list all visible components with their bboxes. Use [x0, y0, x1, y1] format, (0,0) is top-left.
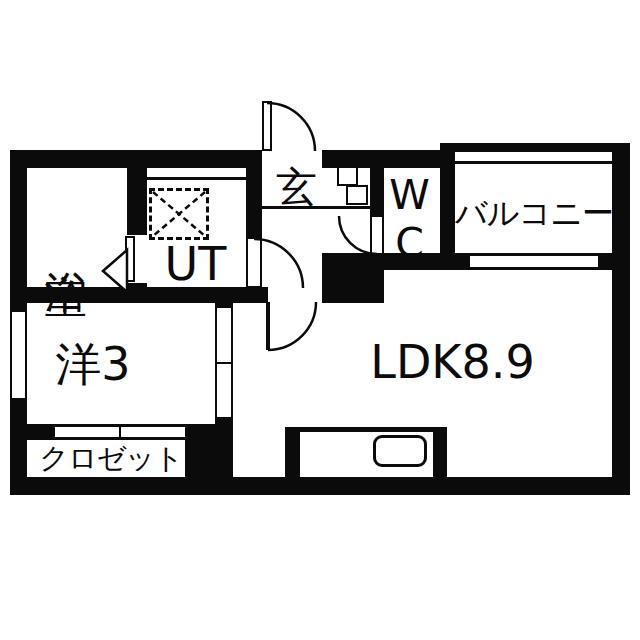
- bathroom-label: 浴室: [44, 183, 89, 295]
- balcony-label: バルコニー: [455, 197, 612, 230]
- washing-machine-pan-icon: [149, 188, 209, 240]
- bathroom-door-slab: [125, 236, 135, 282]
- wc-door-leaf: [370, 215, 384, 255]
- utility-door-leaf: [246, 237, 262, 288]
- bathroom-folding-door-icon: [103, 250, 127, 292]
- door-symbols-layer: [0, 0, 640, 640]
- balcony-divider-wall: [440, 143, 455, 270]
- shoe-cabinet-icon-lower: [346, 185, 368, 205]
- utility-window-slot: [147, 168, 246, 177]
- balcony-rail-outer: [440, 143, 612, 152]
- wall-block-hall: [322, 253, 384, 303]
- entrance-door-leaf: [262, 101, 272, 151]
- wc-left-wall: [370, 168, 384, 216]
- balcony-window-slot: [470, 256, 598, 267]
- wall-bottom: [10, 477, 630, 495]
- closet-sliding-panel-2: [121, 427, 185, 437]
- entrance-door-swing-arc: [267, 103, 315, 151]
- western-room-label: 洋3: [38, 341, 148, 389]
- kitchen-counter-right-post: [433, 427, 447, 477]
- wc-label: WC: [388, 171, 431, 256]
- window-slot-left-wall: [12, 312, 25, 398]
- ldk-label: LDK8.9: [340, 339, 565, 387]
- sliding-door-slot-2: [217, 364, 231, 417]
- closet-label: クロゼット: [30, 443, 192, 473]
- entrance-label: 玄: [274, 166, 319, 209]
- utility-window-line: [147, 177, 246, 180]
- closet-sliding-panel-1: [55, 427, 119, 437]
- sliding-door-slot-1: [217, 308, 231, 362]
- kitchen-counter-left-post: [285, 427, 300, 477]
- ldk-door-swing-arc: [268, 302, 316, 350]
- kitchen-counter-top-edge: [300, 427, 433, 432]
- utility-label: UT: [153, 241, 238, 289]
- shoe-cabinet-icon-upper: [337, 166, 358, 186]
- wall-right: [612, 143, 630, 495]
- floor-plan: 浴室 UT 玄 WC バルコニー 洋3 LDK8.9 クロゼット: [0, 0, 640, 640]
- utility-right-wall: [246, 165, 262, 239]
- balcony-rail-inner: [455, 161, 612, 164]
- kitchen-sink-icon: [373, 435, 427, 467]
